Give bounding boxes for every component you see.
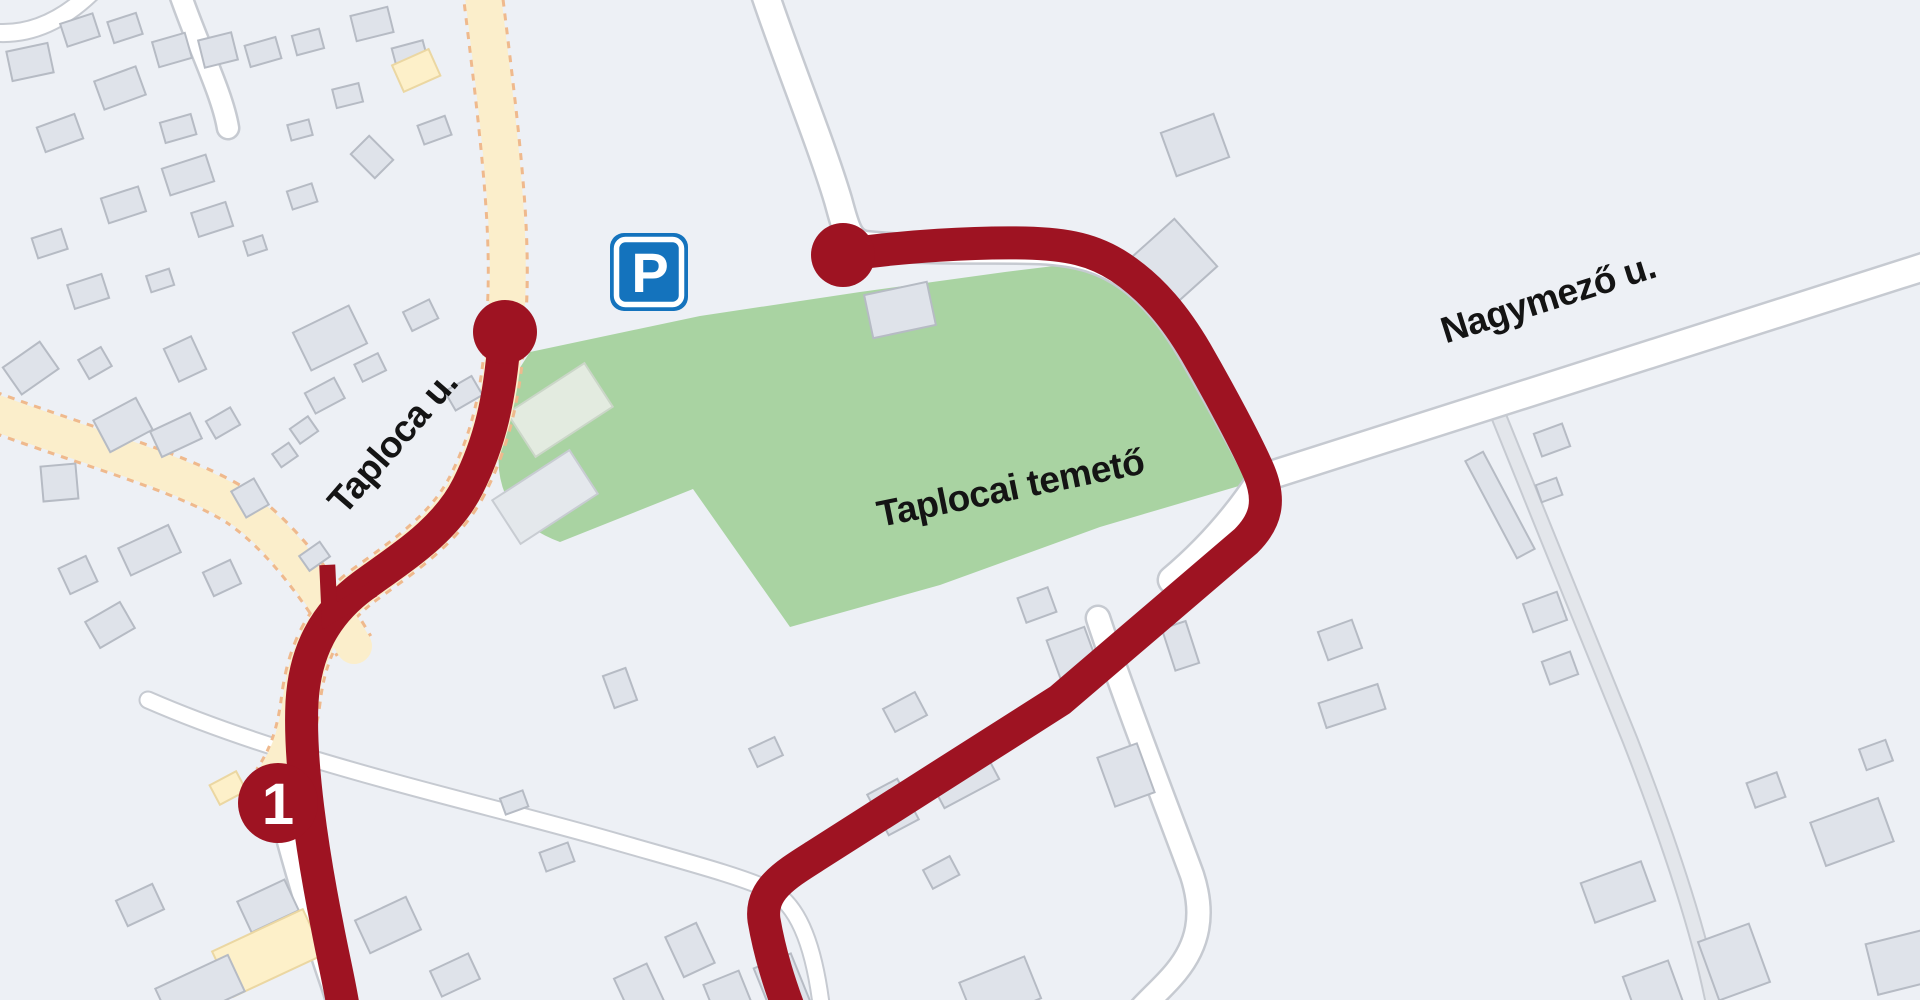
parking-icon-letter: P — [631, 241, 668, 304]
parking-icon[interactable]: P — [610, 233, 688, 311]
route-endpoint-dot-west[interactable] — [473, 300, 537, 364]
stop-marker-number: 1 — [262, 772, 294, 837]
map-canvas[interactable]: 1 Taploca u. Taplocai temető Nagymező u.… — [0, 0, 1920, 1000]
map-svg[interactable]: 1 Taploca u. Taplocai temető Nagymező u.… — [0, 0, 1920, 1000]
building — [40, 464, 78, 502]
route-endpoint-dot-north[interactable] — [811, 223, 875, 287]
stop-marker[interactable]: 1 — [238, 763, 318, 843]
